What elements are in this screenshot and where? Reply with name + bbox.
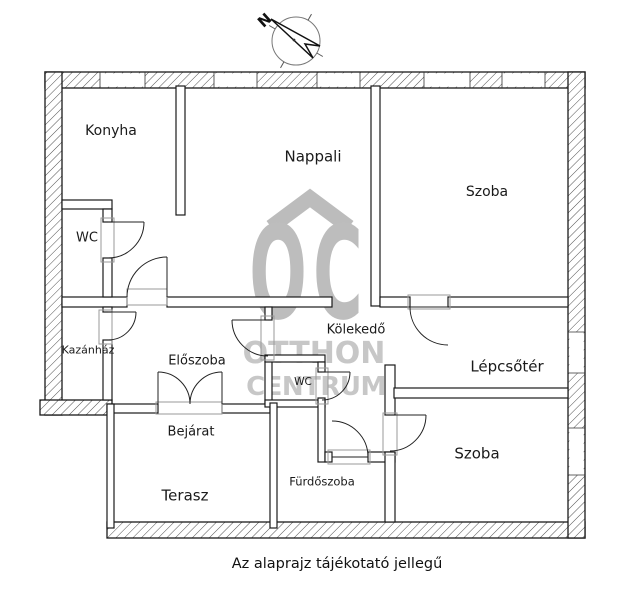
room-label-nappali: Nappali bbox=[285, 150, 342, 165]
compass-north-icon: N bbox=[254, 9, 323, 68]
room-label-wc-left: WC bbox=[76, 232, 98, 245]
room-label-szoba-bottom: Szoba bbox=[454, 447, 499, 462]
floorplan-page: OC OTTHON CENTRUM bbox=[0, 0, 632, 595]
room-label-szoba-top: Szoba bbox=[466, 185, 508, 199]
room-label-furdoszoba: Fürdőszoba bbox=[289, 476, 355, 488]
room-label-kazanhaz: Kazánház bbox=[62, 345, 115, 356]
room-label-konyha: Konyha bbox=[85, 124, 137, 138]
room-label-kolekedo: Kölekedő bbox=[327, 324, 386, 337]
watermark-line1: OTTHON bbox=[243, 336, 386, 371]
caption: Az alaprajz tájékotató jellegű bbox=[232, 556, 443, 572]
floorplan-drawing: OC OTTHON CENTRUM bbox=[0, 0, 632, 595]
room-label-wc-small: WC bbox=[294, 377, 312, 388]
room-label-bejarat: Bejárat bbox=[168, 426, 215, 439]
room-label-eloszoba: Előszoba bbox=[168, 355, 226, 368]
room-label-terasz: Terasz bbox=[162, 489, 209, 504]
compass-north-label: N bbox=[254, 9, 275, 31]
room-label-lepcsoter: Lépcsőtér bbox=[470, 360, 543, 375]
